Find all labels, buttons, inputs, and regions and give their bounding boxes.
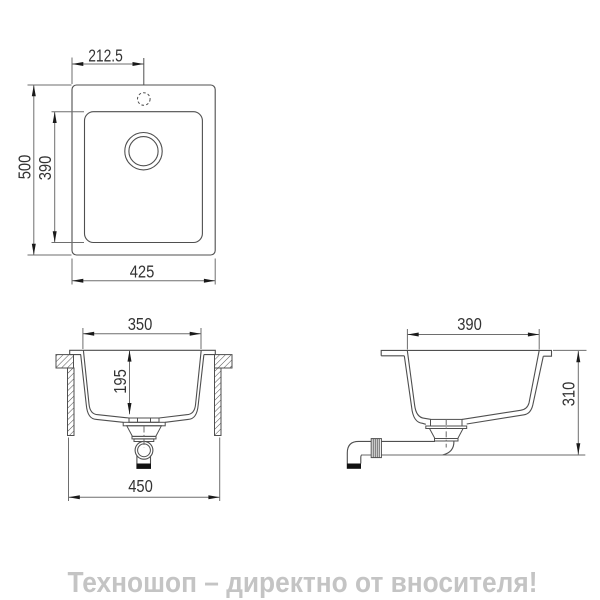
svg-text:195: 195 (110, 369, 130, 394)
svg-text:Техношоп – директно от вносите: Техношоп – директно от вносителя! (68, 567, 538, 599)
svg-text:450: 450 (128, 476, 153, 496)
svg-text:425: 425 (130, 262, 155, 282)
svg-text:350: 350 (128, 314, 153, 334)
svg-text:500: 500 (15, 154, 35, 179)
svg-text:310: 310 (558, 381, 578, 406)
svg-text:390: 390 (457, 314, 482, 334)
svg-text:212.5: 212.5 (88, 45, 123, 65)
svg-text:390: 390 (35, 155, 55, 180)
